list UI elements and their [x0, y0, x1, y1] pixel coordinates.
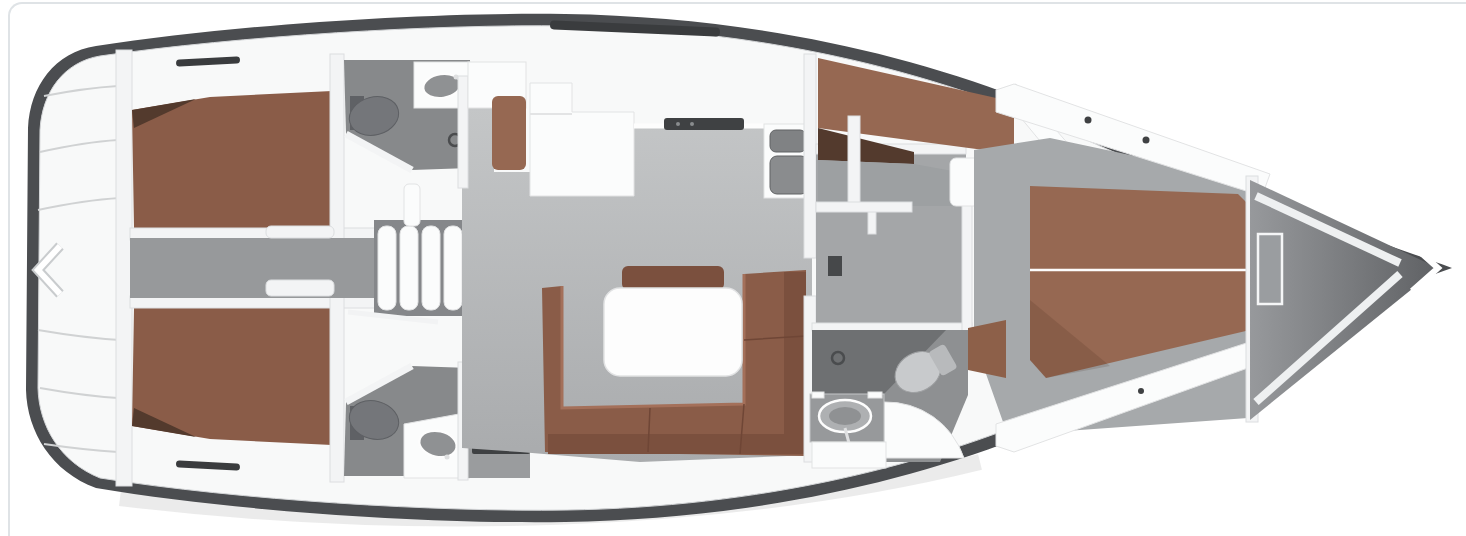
chart-table-seat	[492, 96, 526, 170]
sofa-backrest-bottom	[548, 434, 804, 454]
stove-knob	[690, 122, 694, 126]
anchor-locker	[1258, 234, 1282, 304]
galley-sink-large	[770, 156, 808, 194]
salon-table	[604, 288, 742, 376]
cabin-seat	[968, 320, 1006, 378]
deck-fitting	[1138, 388, 1144, 394]
sofa-backrest	[622, 266, 724, 290]
galley-sink-small	[770, 130, 806, 152]
deck-fitting	[1085, 117, 1092, 124]
stove-knob	[676, 122, 680, 126]
sofa-backrest-right	[784, 272, 806, 454]
faucet	[445, 455, 450, 460]
yacht-floorplan-image	[0, 0, 1466, 536]
forward-head	[810, 330, 968, 468]
owner-cabin-bulkhead	[962, 196, 972, 336]
aft-port-head-wall	[330, 54, 344, 240]
bow-section	[1250, 180, 1438, 420]
transom-bulkhead	[116, 50, 132, 486]
sink-basin	[829, 407, 861, 425]
compression-post	[404, 184, 420, 226]
locker-door	[828, 256, 842, 276]
deck-fitting	[1143, 137, 1150, 144]
main-bulkhead-upper	[804, 54, 816, 258]
aft-starboard-head-wall	[330, 296, 344, 482]
vanity-cabinet	[812, 442, 886, 468]
